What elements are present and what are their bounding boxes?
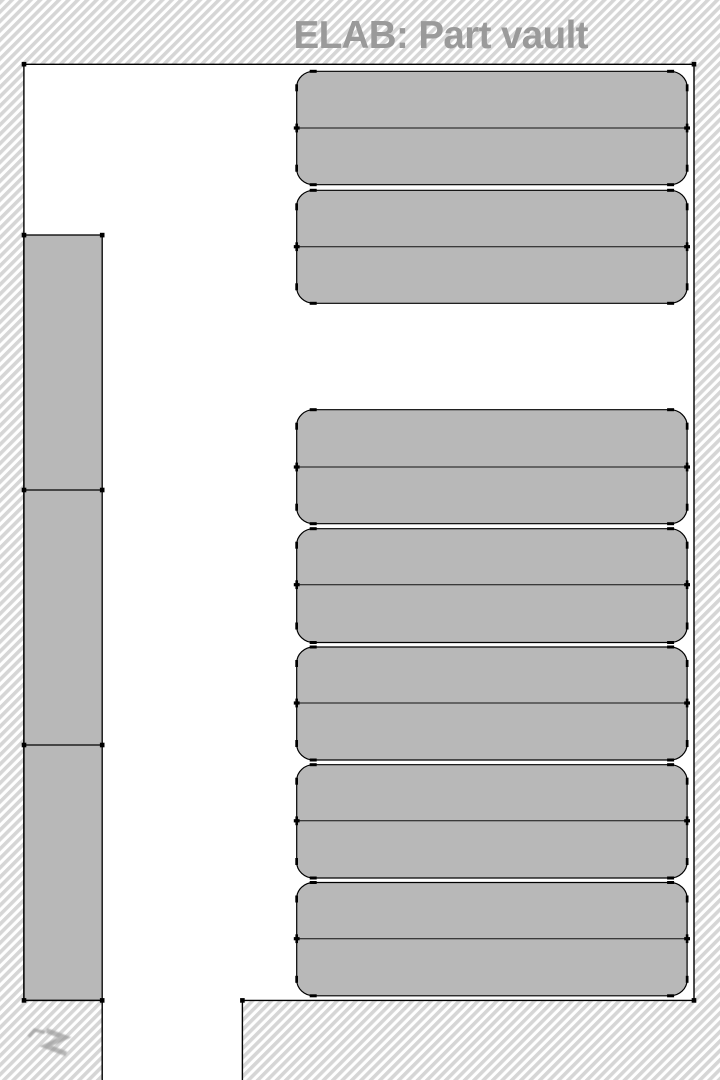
svg-text:ELAB: Part vault: ELAB: Part vault: [294, 14, 589, 57]
